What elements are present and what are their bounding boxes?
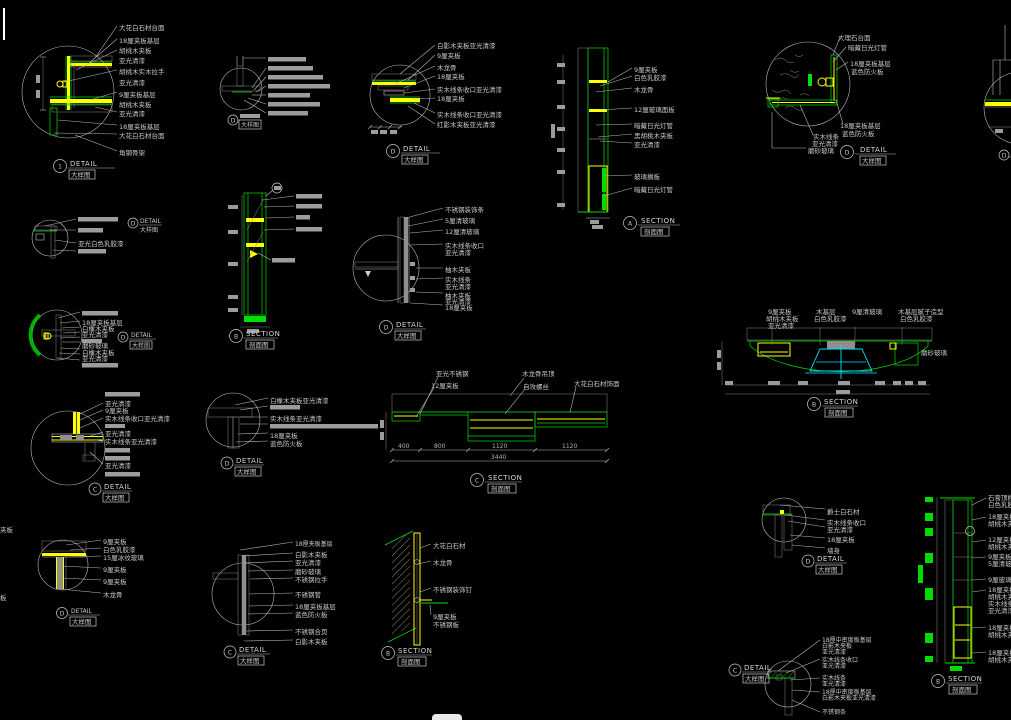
callout-subtitle: 大样图 <box>132 342 150 350</box>
detail-callout[interactable]: D DETAIL 大样图 <box>118 332 156 350</box>
callout-title: DETAIL <box>817 555 844 563</box>
annotation: 自攻螺丝 <box>523 382 550 391</box>
callout-title: SECTION <box>824 398 858 406</box>
callout-subtitle: 剖面图 <box>952 685 972 694</box>
callout-id: D <box>60 611 65 618</box>
section-s1-wall[interactable]: 9厘夹板 白色乳胶漆 木龙骨 12厘玻璃面板 暗藏日光灯管 黑胡桃木夹板 亚光清… <box>551 48 680 236</box>
detail-callout[interactable]: D DETAIL 大样图 <box>128 218 162 234</box>
detail-callout[interactable]: D <box>999 150 1011 160</box>
annotation: 9厘夹板 <box>634 65 658 74</box>
annotation: 亚光白色乳胶漆 <box>78 239 124 248</box>
callout-id: B <box>936 679 940 686</box>
annotation: 白色乳胶漆 <box>103 545 136 554</box>
callout-title: DETAIL <box>860 146 887 154</box>
callout-id: D <box>845 150 850 157</box>
annotation: 18厘夹板 <box>437 94 465 103</box>
detail-d3-step-section[interactable]: 白影木夹板亚光清漆 9厘夹板 木龙骨 18厘夹板 实木线条收口亚光清漆 18厘夹… <box>368 41 503 164</box>
annotation: 不锈钢装饰钉 <box>433 585 473 594</box>
annotation: 9厘夹板 <box>433 612 457 621</box>
callout-subtitle: 大样图 <box>140 226 158 234</box>
callout-title: DETAIL <box>140 218 161 225</box>
annotation: 亚光清漆 <box>119 109 146 118</box>
annotation: 胡桃木夹 <box>988 519 1011 528</box>
callout-id: D <box>131 221 136 228</box>
annotation: 亚光清漆 <box>295 558 322 567</box>
annotation: 胡桃木夹板 <box>119 46 152 55</box>
callout-title: DETAIL <box>744 664 771 672</box>
detail-callout[interactable]: D DETAIL 大样图 <box>380 321 427 341</box>
edge-annotation: 板 <box>0 593 7 602</box>
callout-title: DETAIL <box>236 457 263 465</box>
annotation: 18厘夹板 <box>270 431 298 440</box>
annotation: 大花白石材台面 <box>119 23 165 32</box>
annotation: 亚光清漆 <box>105 429 132 438</box>
annotation: 蓝色防火板 <box>270 439 303 448</box>
annotation: 亚光不锈钢 <box>436 369 469 378</box>
dimension: 400 <box>398 443 410 450</box>
callout-id: D <box>225 461 230 468</box>
callout-subtitle: 大样图 <box>105 493 125 502</box>
annotation: 黑胡桃木夹板 <box>634 131 674 140</box>
detail-d10-partition[interactable]: 夹板 板 9厘夹板 白色乳胶漆 15厘冰纹玻璃 9厘夹板 9厘夹板 木龙骨 D … <box>0 525 144 626</box>
annotation: 18厘夹板 <box>437 72 465 81</box>
annotation: 亚光清漆 <box>822 662 846 670</box>
callout-title: SECTION <box>246 330 280 338</box>
callout-title: SECTION <box>948 675 982 683</box>
annotation: 18厘夹板基层 <box>119 122 160 131</box>
annotation: 亚光清漆 <box>119 56 146 65</box>
detail-d8-corner[interactable]: 亚光清漆 9厘夹板 实木线条收口亚光清漆 亚光清漆 实木线条亚光清漆 亚光清漆 … <box>31 392 171 502</box>
callout-title: DETAIL <box>239 646 266 654</box>
annotation: 9厘玻璃 <box>988 575 1011 584</box>
annotation: 9厘夹板 <box>105 406 129 415</box>
dimension: 1120 <box>562 443 577 450</box>
detail-d11-door[interactable]: 18厘夹板基层 白影木夹板 亚光清漆 磨砂玻璃 不锈钢拉手 不锈钢管 18厘夹板… <box>212 540 336 665</box>
annotation: 不锈钢装饰条 <box>445 205 485 214</box>
callout-title: DETAIL <box>104 483 131 491</box>
section-s6-tall-wall[interactable]: 石膏顶棚 白色乳胶 18厘夹板 胡桃木夹 12厘夹板 胡桃木夹 9厘夹板 5厘清… <box>918 493 1011 694</box>
section-s2-cabinet[interactable]: B SECTION 剖面图 <box>228 183 322 349</box>
annotation: 亚光清漆 <box>119 78 146 87</box>
callout-subtitle: 大样图 <box>862 156 882 165</box>
callout-title: SECTION <box>488 474 522 482</box>
detail-d13-trim[interactable]: 18厘中密度板基层 白影木夹板 亚光清漆 实木线条收口 亚光清漆 实木线条 亚光… <box>729 636 876 716</box>
annotation: 木龙骨吊顶 <box>522 369 555 378</box>
annotation: 柚木夹板 <box>445 265 472 274</box>
detail-d6-panel[interactable]: 不锈钢装饰条 5厘清玻璃 12厘清玻璃 实木线条收口 亚光清漆 柚木夹板 实木线… <box>353 205 485 340</box>
annotation: 墙身 <box>827 546 841 555</box>
callout-id: C <box>228 650 232 657</box>
marble-texture <box>772 55 809 110</box>
callout-id: A <box>628 221 633 228</box>
annotation: 9厘夹板 <box>103 537 127 546</box>
annotation: 18厘夹板基层 <box>850 59 891 68</box>
annotation: 白色乳胶漆 <box>900 314 933 323</box>
bottom-edge-marker <box>432 714 462 720</box>
section-s3-ceiling[interactable]: 亚光不锈钢 12厘夹板 木龙骨吊顶 自攻螺丝 大花白石材饰面 400 800 1… <box>380 369 620 493</box>
callout-subtitle: 大样图 <box>237 467 257 476</box>
callout-subtitle: 剖面图 <box>249 340 269 349</box>
callout-title: DETAIL <box>403 145 430 153</box>
annotation: 木龙骨 <box>433 558 453 567</box>
callout-id: D <box>806 559 811 566</box>
callout-subtitle: 大样图 <box>72 617 92 626</box>
callout-title: DETAIL <box>70 160 97 168</box>
annotation: 亚光清漆 <box>822 680 846 688</box>
annotation: 磨砂玻璃 <box>295 567 322 576</box>
annotation: 蓝色防火板 <box>851 67 884 76</box>
annotation: 亚光清漆 <box>768 321 795 330</box>
detail-callout[interactable]: D DETAIL 大样图 <box>841 146 897 166</box>
section-callout[interactable]: C SECTION 剖面图 <box>471 474 523 494</box>
detail-d9-corner[interactable]: 白橡木夹板亚光清漆 实木线条亚光清漆 18厘夹板 蓝色防火板 D DETAIL … <box>206 393 378 476</box>
annotation: 12厘清玻璃 <box>445 227 480 236</box>
section-s5-wall[interactable]: 大花白石材 木龙骨 不锈钢装饰钉 9厘夹板 不锈钢板 B SECTION 剖面图 <box>382 531 473 666</box>
annotation: 实木线条亚光清漆 <box>105 437 158 446</box>
detail-callout[interactable]: D DETAIL 大样图 <box>802 555 847 574</box>
left-edge-marker <box>3 8 5 40</box>
cad-drawing-canvas[interactable]: 大花白石材台面 18厘夹板基层 胡桃木夹板 亚光清漆 胡桃木实木拉手 亚光清漆 … <box>0 0 1011 720</box>
annotation: 实木线条收口亚光清漆 <box>105 414 171 423</box>
annotation: 角钢骨架 <box>119 148 146 157</box>
callout-id: D <box>231 118 236 125</box>
callout-id: B <box>386 651 390 658</box>
dimension: 1120 <box>492 443 507 450</box>
annotation: 白影木夹板亚光清漆 <box>437 41 496 50</box>
section-callout[interactable]: A SECTION 剖面图 <box>624 217 681 237</box>
annotation: 胡桃木夹板 <box>119 100 152 109</box>
detail-d4-marble-counter[interactable]: 大理石台面 暗藏日光灯管 18厘夹板基层 蓝色防火板 18厘夹板基层 蓝色防火板… <box>766 33 896 165</box>
annotation: 9厘夹板 <box>103 565 127 574</box>
annotation: 爵士白石材 <box>827 507 860 516</box>
detail-d2-cross-section[interactable]: D 大样图 <box>220 56 330 129</box>
callout-id: D <box>121 335 126 342</box>
callout-subtitle: 剖面图 <box>401 657 421 666</box>
callout-id: B <box>234 334 238 341</box>
section-callout[interactable]: B SECTION 剖面图 <box>382 647 433 667</box>
annotation: 亚光清漆 <box>827 525 854 534</box>
annotation: 玻璃搁板 <box>634 172 661 181</box>
annotation: 蓝色防火板 <box>295 610 328 619</box>
detail-callout[interactable]: D DETAIL 大样图 <box>221 457 264 476</box>
annotation: 亚光清漆 <box>988 606 1011 615</box>
annotation: 白影木夹板 <box>295 550 328 559</box>
annotation: 亚光清漆 <box>634 140 661 149</box>
annotation: 18厘夹板基层 <box>295 602 336 611</box>
detail-callout[interactable]: D DETAIL 大样图 <box>57 608 101 627</box>
detail-d1-counter-section[interactable]: 大花白石材台面 18厘夹板基层 胡桃木夹板 亚光清漆 胡桃木实木拉手 亚光清漆 … <box>22 23 165 179</box>
annotation: 9厘清玻璃 <box>852 307 883 316</box>
section-s4-curved-ceiling[interactable]: 9厘夹板 胡桃木夹板 亚光清漆 木基层 白色乳胶漆 9厘清玻璃 木基层腻子造型 … <box>717 307 948 417</box>
annotation: 亚光清漆 <box>82 330 109 339</box>
annotation: 不锈钢板 <box>433 620 460 629</box>
callout-subtitle: 大样图 <box>71 170 91 179</box>
annotation: 木龙骨 <box>103 590 123 599</box>
callout-subtitle: 大样图 <box>404 155 424 164</box>
detail-d14-edge-partial[interactable]: D <box>984 25 1011 160</box>
annotation: 胡桃木夹 <box>988 655 1011 664</box>
annotation: 胡桃木夹 <box>988 630 1011 639</box>
annotation: 暗藏日光灯管 <box>634 185 674 194</box>
annotation: 15厘冰纹玻璃 <box>103 553 144 562</box>
callout-subtitle: 大样图 <box>241 121 259 129</box>
annotation: 亚光清漆 <box>445 282 472 291</box>
callout-id: D <box>1002 153 1007 160</box>
annotation: 12厘夹板 <box>431 381 459 390</box>
callout-title: SECTION <box>398 647 432 655</box>
annotation: 5厘清玻 <box>988 559 1011 568</box>
dimension-total: 3440 <box>491 454 506 461</box>
annotation: 9厘夹板 <box>437 51 461 60</box>
annotation: 大花白石材饰面 <box>574 379 620 388</box>
callout-subtitle: 大样图 <box>240 656 260 665</box>
section-callout[interactable]: B SECTION 剖面图 <box>932 675 983 695</box>
callout-title: DETAIL <box>396 321 423 329</box>
annotation: 暗藏日光灯管 <box>634 121 674 130</box>
annotation: 红影木夹板亚光清漆 <box>437 120 496 129</box>
callout-id: 1 <box>58 164 62 171</box>
section-callout[interactable]: B SECTION 剖面图 <box>808 398 859 418</box>
detail-callout[interactable]: 1 DETAIL 大样图 <box>54 160 116 180</box>
callout-id: C <box>475 478 479 485</box>
annotation: 亚光清漆 <box>445 248 472 257</box>
dimension: 800 <box>434 443 446 450</box>
annotation: 白影木夹板 <box>295 637 328 646</box>
annotation: 实木线条收口亚光清漆 <box>437 85 503 94</box>
annotation: 木龙骨 <box>634 85 654 94</box>
callout-id: C <box>733 668 737 675</box>
annotation: 木龙骨 <box>437 63 457 72</box>
detail-callout[interactable]: C DETAIL 大样图 <box>224 646 270 665</box>
annotation: 胡桃木夹 <box>988 542 1011 551</box>
callout-id: B <box>812 402 816 409</box>
detail-d5-corner[interactable]: 亚光白色乳胶漆 D DETAIL 大样图 <box>32 217 162 258</box>
annotation: 18厘夹板基层 <box>295 540 333 548</box>
annotation: 实木线条收口亚光清漆 <box>437 110 503 119</box>
annotation: 实木线条亚光清漆 <box>270 414 323 423</box>
callout-subtitle: 大样图 <box>397 331 417 340</box>
annotation: 白影木夹板亚光清漆 <box>822 694 876 702</box>
callout-title: DETAIL <box>131 332 152 339</box>
annotation: 蓝色防火板 <box>842 129 875 138</box>
annotation: 白色乳胶漆 <box>814 314 847 323</box>
annotation: 18厘夹板基层 <box>840 121 881 130</box>
annotation: 白色乳胶漆 <box>634 73 667 82</box>
annotation: 9厘夹板 <box>103 577 127 586</box>
annotation: 不锈钢合页 <box>295 627 328 636</box>
detail-callout[interactable]: D DETAIL 大样图 <box>387 145 441 165</box>
callout-subtitle: 大样图 <box>818 565 838 574</box>
annotation: 胡桃木实木拉手 <box>119 67 165 76</box>
callout-id: C <box>93 487 97 494</box>
callout-subtitle: 剖面图 <box>828 408 848 417</box>
annotation: 18厘夹板 <box>827 535 855 544</box>
annotation: 不锈钢条 <box>822 708 846 716</box>
callout-title: DETAIL <box>71 608 92 615</box>
annotation: 大花白石材台面 <box>119 131 165 140</box>
callout-title: SECTION <box>641 217 675 225</box>
annotation: 12厘玻璃面板 <box>634 105 675 114</box>
annotation: 亚光清漆 <box>822 648 846 656</box>
detail-callout[interactable]: C DETAIL 大样图 <box>89 483 132 502</box>
detail-d12-stone-trim[interactable]: 爵士白石材 实木线条收口 亚光清漆 18厘夹板 墙身 D DETAIL 大样图 <box>762 498 866 574</box>
annotation: 5厘清玻璃 <box>445 216 476 225</box>
annotation: 不锈钢拉手 <box>295 575 328 584</box>
section-callout[interactable]: B SECTION 剖面图 <box>230 330 281 350</box>
callout-id: D <box>391 149 396 156</box>
callout-subtitle: 剖面图 <box>644 227 664 236</box>
detail-d7-knob[interactable]: 18厘夹板基层 白橡木夹板 亚光清漆 磨砂玻璃 白橡木夹板 亚光清漆 D DET… <box>31 310 156 368</box>
annotation: 磨砂玻璃 <box>808 146 835 155</box>
callout-subtitle: 剖面图 <box>491 484 511 493</box>
annotation: 大花白石材 <box>433 541 466 550</box>
annotation: 18厘夹板 <box>445 303 473 312</box>
annotation: 亚光清漆 <box>82 354 109 363</box>
annotation: 18厘夹板基层 <box>119 36 160 45</box>
annotation: 白色乳胶 <box>988 500 1011 509</box>
annotation: 白橡木夹板亚光清漆 <box>270 396 329 405</box>
annotation: 磨砂玻璃 <box>921 348 948 357</box>
annotation: 不锈钢管 <box>295 590 322 599</box>
callout-subtitle: 大样图 <box>745 674 765 683</box>
annotation: 9厘夹板基层 <box>119 90 156 99</box>
edge-annotation: 夹板 <box>0 525 14 534</box>
detail-callout[interactable]: D 大样图 <box>228 114 261 129</box>
callout-id: D <box>384 325 389 332</box>
annotation: 暗藏日光灯管 <box>848 43 888 52</box>
annotation: 亚光清漆 <box>105 461 132 470</box>
annotation: 大理石台面 <box>838 33 871 42</box>
